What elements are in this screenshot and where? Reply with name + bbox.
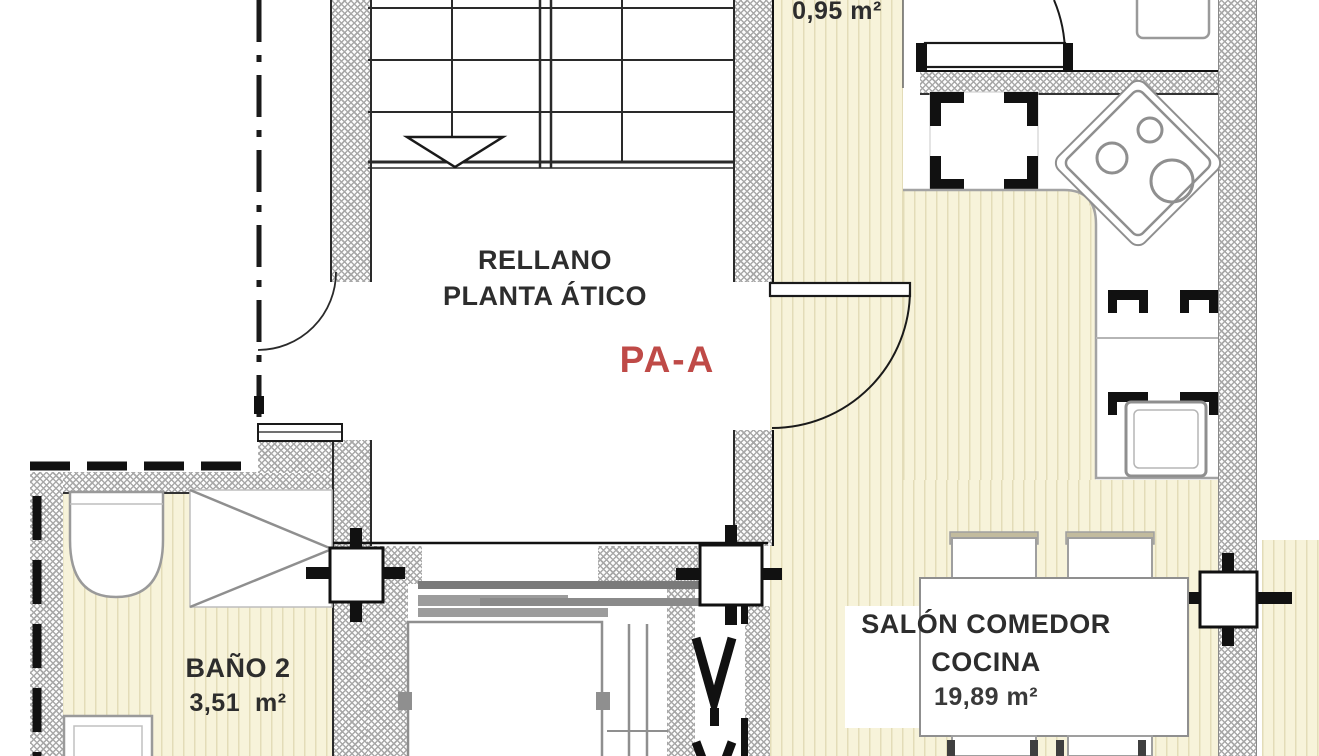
wall-edge-dashes xyxy=(741,590,748,756)
living-area-label: 19,89 m² xyxy=(840,684,1132,712)
bathroom-sink xyxy=(64,716,152,756)
dining-chair-top-right xyxy=(1066,532,1154,580)
window xyxy=(258,424,342,441)
room-label-living-line1: SALÓN COMEDOR xyxy=(840,610,1132,640)
dining-chair-top-left xyxy=(950,532,1038,580)
room-label-living-line2: COCINA xyxy=(840,648,1132,678)
floorplan-attic-level: RELLANO PLANTA ÁTICO PA-A 0,95 m² BAÑO 2… xyxy=(0,0,1319,756)
room-label-landing-line1: RELLANO xyxy=(420,246,670,276)
cooktop-icon xyxy=(1052,77,1225,250)
bathroom-door xyxy=(190,490,332,607)
elevator xyxy=(398,581,715,756)
bathtub xyxy=(70,492,163,597)
boundary-dashdot-line xyxy=(254,0,264,428)
vent-shaft-marks xyxy=(696,638,732,756)
terrace-sink xyxy=(1137,0,1209,38)
appliance-brackets xyxy=(1108,290,1218,415)
room-label-landing-line2: PLANTA ÁTICO xyxy=(400,282,690,312)
dining-chair-bottom-left xyxy=(952,736,1036,756)
vestibule-area-label: 0,95 m² xyxy=(772,0,902,26)
kitchen-sink xyxy=(1126,402,1206,476)
unit-code-label: PA-A xyxy=(595,340,740,381)
terrace-door xyxy=(916,0,1073,72)
column-center xyxy=(676,525,782,625)
kitchen-shaft xyxy=(930,92,1038,190)
stairwell-door-arc xyxy=(258,272,336,350)
room-label-bathroom: BAÑO 2 xyxy=(158,654,318,684)
bathroom-area-label: 3,51 m² xyxy=(158,690,318,718)
entrance-door xyxy=(770,283,910,428)
